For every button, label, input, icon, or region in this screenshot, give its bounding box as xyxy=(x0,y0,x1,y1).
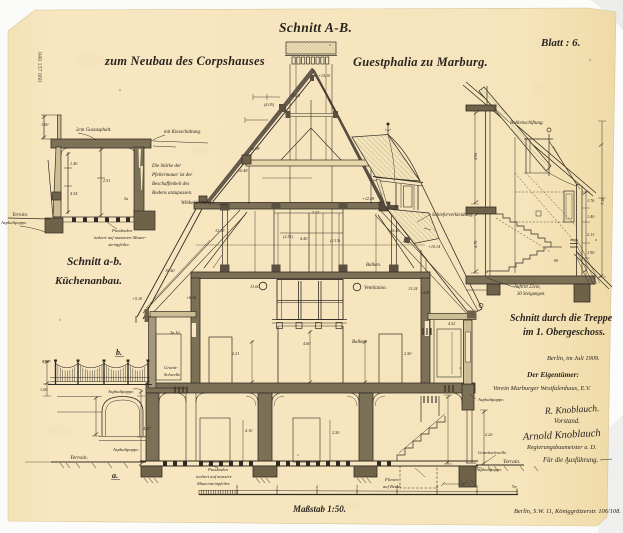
svg-text:zum Neubau des Corpshauses: zum Neubau des Corpshauses xyxy=(104,54,265,68)
svg-text:(4.05): (4.05) xyxy=(264,102,275,107)
svg-text:11.10: 11.10 xyxy=(291,93,301,98)
svg-text:isoliert auf massiven Mauer-: isoliert auf massiven Mauer- xyxy=(94,235,147,240)
svg-text:Pussboden: Pussboden xyxy=(111,228,133,233)
svg-text:Auftritt 22cm,: Auftritt 22cm, xyxy=(513,285,541,290)
svg-text:1.00: 1.00 xyxy=(41,122,49,127)
svg-text:4.34: 4.34 xyxy=(70,191,77,196)
svg-text:Terrain.: Terrain. xyxy=(503,459,520,465)
svg-text:Schwelle.: Schwelle. xyxy=(164,372,181,377)
svg-text:+8.10: +8.10 xyxy=(186,295,197,300)
svg-text:4.60: 4.60 xyxy=(303,341,311,346)
svg-text:a.: a. xyxy=(112,471,118,480)
svg-text:040 137 060: 040 137 060 xyxy=(36,52,42,82)
svg-text:Berlin, S.W. 11, Königgrätzers: Berlin, S.W. 11, Königgrätzerstr. 106/10… xyxy=(514,508,621,515)
svg-text:Schnitt a-b.: Schnitt a-b. xyxy=(67,256,122,268)
svg-text:Für die Ausführung.: Für die Ausführung. xyxy=(542,457,598,464)
svg-text:Pfeilermauer ist der: Pfeilermauer ist der xyxy=(151,173,192,178)
svg-text:Regierungsbaumeister a. D.: Regierungsbaumeister a. D. xyxy=(526,444,596,451)
svg-text:4.10: 4.10 xyxy=(245,428,253,433)
svg-text:2.50: 2.50 xyxy=(404,351,412,356)
svg-text:Beschaffenheit des: Beschaffenheit des xyxy=(152,182,189,187)
svg-text:2.21: 2.21 xyxy=(232,351,239,356)
svg-text:10.40: 10.40 xyxy=(165,268,175,273)
svg-text:Fliesen: Fliesen xyxy=(384,477,399,482)
svg-text:Maßstab 1:50.: Maßstab 1:50. xyxy=(292,504,346,514)
svg-text:2cm Gussasphalt.: 2cm Gussasphalt. xyxy=(76,128,112,133)
svg-text:+12.28: +12.28 xyxy=(362,196,375,201)
svg-text:Granitschwelle.: Granitschwelle. xyxy=(478,450,507,455)
svg-text:Schnitt A-B.: Schnitt A-B. xyxy=(279,20,352,35)
svg-text:Asphaltpappe.: Asphaltpappe. xyxy=(477,397,504,402)
svg-text:0.90: 0.90 xyxy=(42,359,50,364)
svg-text:Guestphalia zu Marburg.: Guestphalia zu Marburg. xyxy=(353,55,488,69)
svg-text:Ventilation.: Ventilation. xyxy=(364,286,387,291)
svg-text:4.40: 4.40 xyxy=(300,236,308,241)
svg-text:+10.14: +10.14 xyxy=(428,244,440,249)
svg-text:13.24: 13.24 xyxy=(408,286,417,291)
svg-text:3: 3 xyxy=(356,484,358,489)
svg-text:4.94: 4.94 xyxy=(473,153,478,160)
svg-text:5a: 5a xyxy=(124,196,128,201)
svg-text:Die Stärke der: Die Stärke der xyxy=(151,164,181,169)
svg-text:Küchenanbau.: Küchenanbau. xyxy=(54,275,122,287)
svg-text:+4.50: +4.50 xyxy=(420,290,431,295)
svg-text:Balken.: Balken. xyxy=(366,263,381,268)
svg-text:13.60: 13.60 xyxy=(250,284,260,289)
svg-text:2.13: 2.13 xyxy=(587,232,594,237)
svg-text:Mauersteinpfeiler.: Mauersteinpfeiler. xyxy=(196,481,231,486)
svg-text:1.00: 1.00 xyxy=(40,387,48,392)
svg-text:Bodens anzupassen.: Bodens anzupassen. xyxy=(152,191,192,196)
svg-text:7.73: 7.73 xyxy=(312,210,319,215)
svg-text:30 Steigungen.: 30 Steigungen. xyxy=(517,292,546,297)
svg-text:steinpfeiler.: steinpfeiler. xyxy=(108,242,129,247)
svg-text:12.13: 12.13 xyxy=(215,228,224,233)
svg-text:b.: b. xyxy=(116,348,122,357)
svg-text:1: 1 xyxy=(276,484,278,489)
svg-text:Asphaltpappe.: Asphaltpappe. xyxy=(0,220,27,225)
svg-text:1.40: 1.40 xyxy=(587,214,595,219)
svg-text:1.90: 1.90 xyxy=(587,250,595,255)
svg-text:mit Kiesschüttung.: mit Kiesschüttung. xyxy=(164,130,201,135)
svg-text:7.10: 7.10 xyxy=(600,197,605,205)
svg-text:12.98: 12.98 xyxy=(250,146,260,151)
svg-text:2: 2 xyxy=(316,484,318,489)
svg-text:Vorstand.: Vorstand. xyxy=(554,418,580,425)
svg-text:2.20: 2.20 xyxy=(485,432,493,437)
svg-text:1.40: 1.40 xyxy=(70,161,78,166)
svg-text:3a.10: 3a.10 xyxy=(170,330,180,335)
svg-text:Verein Marburger Westfalenhaus: Verein Marburger Westfalenhaus, E.V. xyxy=(493,385,591,392)
svg-text:10.46: 10.46 xyxy=(390,228,400,233)
svg-text:4.52: 4.52 xyxy=(448,321,455,326)
svg-text:Berlin, im Juli 1909.: Berlin, im Juli 1909. xyxy=(547,355,600,362)
svg-text:2.51: 2.51 xyxy=(103,178,110,183)
svg-text:+5.10: +5.10 xyxy=(132,296,143,301)
svg-text:Asphaltpappe.: Asphaltpappe. xyxy=(107,389,134,394)
svg-text:Terrain.: Terrain. xyxy=(12,213,28,218)
svg-text:Wibbeldeckung.: Wibbeldeckung. xyxy=(181,201,213,206)
svg-text:10.48: 10.48 xyxy=(238,168,248,173)
svg-text:im 1. Obergeschoss.: im 1. Obergeschoss. xyxy=(523,327,605,338)
svg-text:2.50: 2.50 xyxy=(332,430,340,435)
svg-text:isoliert auf massive: isoliert auf massive xyxy=(196,474,232,479)
svg-text:(2.13): (2.13) xyxy=(330,238,341,243)
svg-text:1.76: 1.76 xyxy=(587,198,595,203)
svg-text:+14.10: +14.10 xyxy=(318,73,331,78)
svg-text:Balken.: Balken. xyxy=(352,340,367,345)
svg-text:(2.51): (2.51) xyxy=(283,234,294,239)
svg-text:Granit-: Granit- xyxy=(164,365,178,370)
svg-text:Terrain.: Terrain. xyxy=(70,455,88,461)
svg-text:Schnitt durch die Treppe: Schnitt durch die Treppe xyxy=(510,313,613,324)
svg-text:auf Beton.: auf Beton. xyxy=(383,484,402,489)
svg-text:7m: 7m xyxy=(511,484,516,489)
svg-text:Asphaltpappe.: Asphaltpappe. xyxy=(112,447,139,452)
svg-text:Blatt : 6.: Blatt : 6. xyxy=(540,37,580,49)
svg-text:4.07: 4.07 xyxy=(143,426,151,431)
svg-text:4.70: 4.70 xyxy=(473,240,478,248)
svg-text:Der Eigentümer:: Der Eigentümer: xyxy=(526,370,579,379)
svg-text:Bohlenschiftung.: Bohlenschiftung. xyxy=(510,121,544,126)
